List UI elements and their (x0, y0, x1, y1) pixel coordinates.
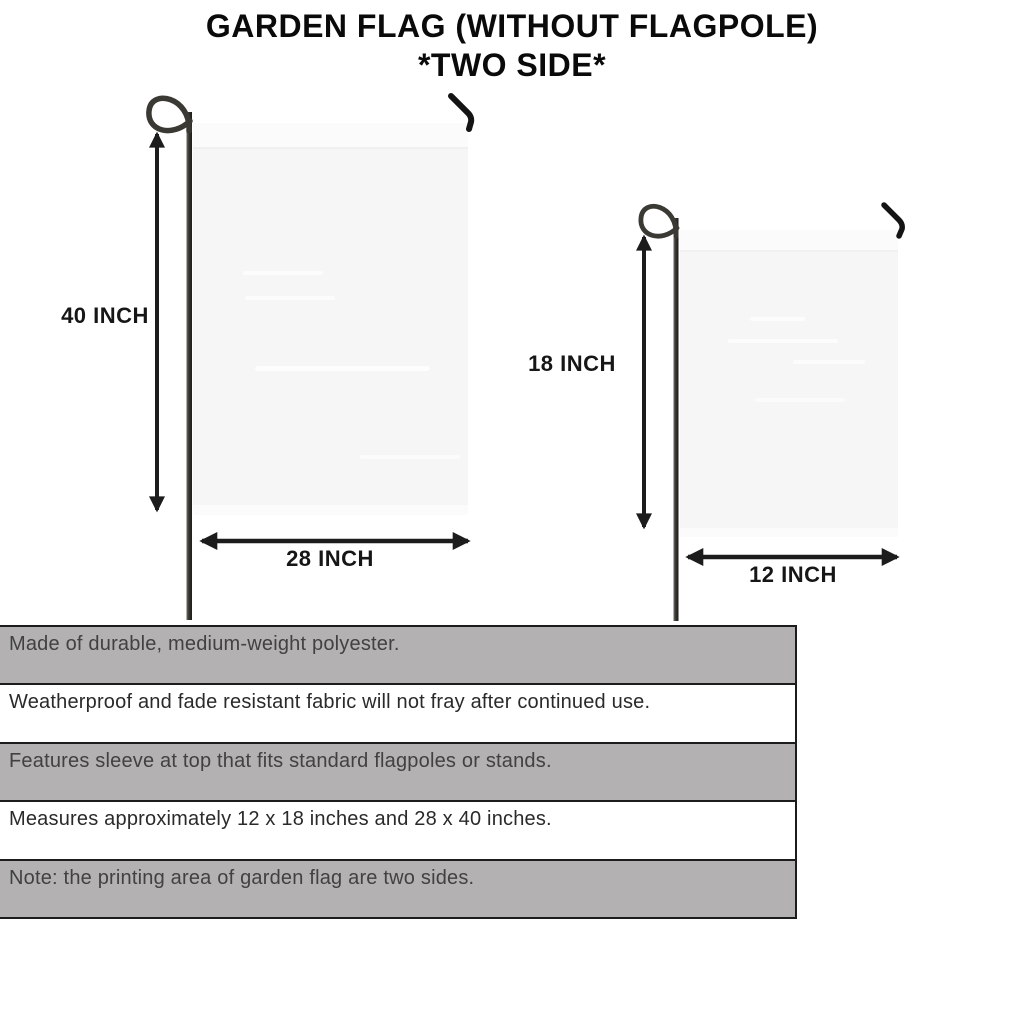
feature-row: Weatherproof and fade resistant fabric w… (0, 685, 795, 743)
feature-text: Note: the printing area of garden flag a… (9, 867, 474, 889)
small-flag-canvas (680, 230, 898, 537)
large-flag-sleeve (193, 123, 468, 147)
feature-text: Made of durable, medium-weight polyester… (9, 633, 400, 655)
large-flagpole (187, 112, 193, 620)
small-flagpole (674, 218, 679, 621)
feature-text: Measures approximately 12 x 18 inches an… (9, 808, 552, 830)
feature-text: Weatherproof and fade resistant fabric w… (9, 691, 650, 713)
small-flag-sleeve (680, 230, 898, 250)
small-flag-group (641, 205, 902, 621)
feature-row: Made of durable, medium-weight polyester… (0, 627, 795, 685)
feature-row: Measures approximately 12 x 18 inches an… (0, 802, 795, 860)
small-flag-width-label: 12 INCH (718, 562, 868, 588)
garden-flag-infographic: GARDEN FLAG (WITHOUT FLAGPOLE) *TWO SIDE… (0, 0, 1024, 1024)
feature-row: Features sleeve at top that fits standar… (0, 744, 795, 802)
small-flag-height-label: 18 INCH (515, 351, 629, 377)
large-pole-loop (149, 98, 190, 131)
large-flag-height-label: 40 INCH (55, 303, 155, 329)
large-flag-group (149, 96, 471, 620)
small-pole-loop (641, 206, 677, 236)
feature-row: Note: the printing area of garden flag a… (0, 861, 795, 919)
feature-text: Features sleeve at top that fits standar… (9, 750, 552, 772)
large-flag-width-label: 28 INCH (255, 546, 405, 572)
features-table: Made of durable, medium-weight polyester… (0, 625, 797, 919)
